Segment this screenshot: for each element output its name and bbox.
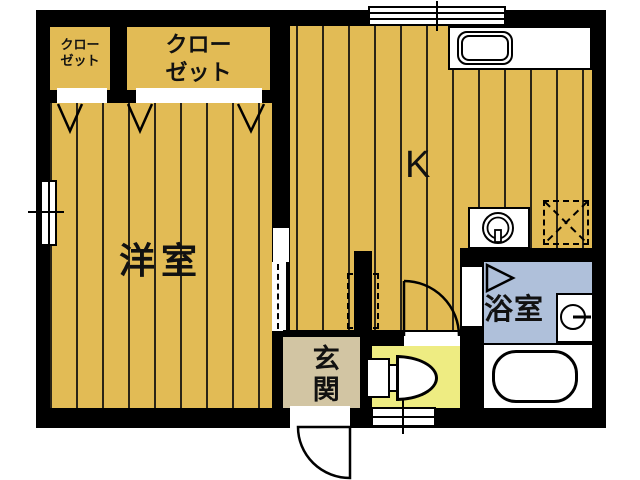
stub-dashed-outline [347, 273, 379, 329]
entry-door-swing-icon [298, 427, 350, 478]
kitchen-counter [448, 26, 592, 70]
top-window-icon [368, 6, 506, 26]
entrance-top-wall [283, 330, 360, 337]
kitchen-sink-icon [457, 31, 513, 65]
toilet-window-icon [371, 407, 436, 427]
stove-box [468, 207, 530, 249]
wash-basin-box [556, 293, 592, 343]
mid-door-opening [273, 228, 289, 262]
toilet-tank [366, 358, 390, 398]
toilet-door-opening [404, 332, 461, 346]
western-room-label: 洋室 [50, 238, 272, 283]
entrance-label: 玄関 [306, 344, 340, 406]
bathtub-icon [492, 350, 578, 403]
refrigerator-space [543, 200, 589, 245]
bathroom-label: 浴室 [484, 292, 544, 328]
closet-large-label: クローゼット [164, 31, 233, 86]
closet-small-door-opening [57, 88, 107, 103]
wall-right [592, 10, 606, 428]
entry-door-opening [290, 406, 350, 428]
bathroom-door-opening [462, 267, 482, 326]
floorplan: 洋室 K 玄関 浴室 クローゼット クローゼット [0, 0, 640, 480]
mid-sliding-door [272, 262, 286, 331]
kitchen-label: K [405, 142, 430, 190]
sliding-door-dash-line [277, 264, 279, 329]
closet-large-door-opening [136, 88, 262, 103]
bathroom-top-wall [460, 248, 592, 262]
left-window-icon [40, 180, 57, 246]
closet-small-label: クローゼット [59, 37, 101, 70]
